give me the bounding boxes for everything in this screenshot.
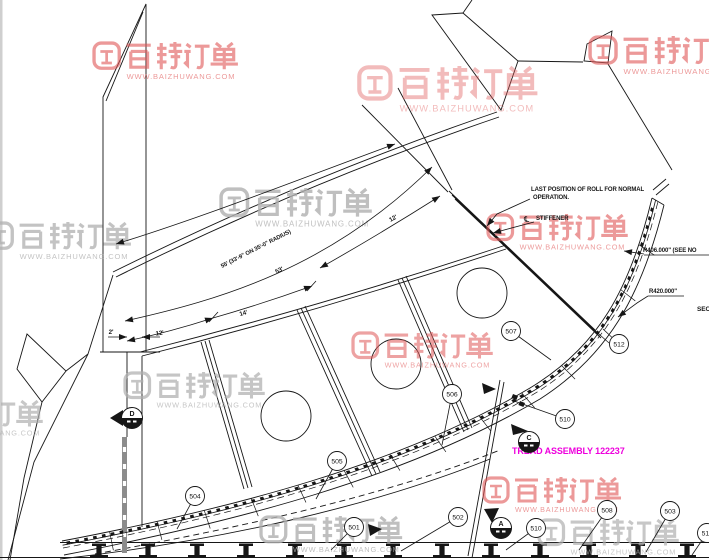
annotation-section-title-partial: SECT [697,306,709,313]
watermark-logo-icon [484,478,508,502]
annotation-radius-420: R420.000" [649,289,677,295]
annotation-radius-406: R406.000" (SEE NO [643,248,697,254]
dim-12ft-left: 12' [155,329,165,337]
dim-arc-14ft [213,286,312,318]
bolt-symbol [90,544,108,558]
watermark: WWW.BAIZHUWANG.COM [125,372,265,410]
balloon-507: 507 [502,322,552,361]
watermark-logo-icon [353,333,377,357]
watermark-logo-icon [94,43,119,68]
watermark-logo-icon [125,373,149,397]
balloon-number: 501 [348,524,360,531]
balloon-511: 511 [692,524,709,556]
balloon-number: 511 [702,530,709,537]
watermark: WWW.BAIZHUWANG.COM [0,222,131,261]
watermark-logo-icon [221,189,247,215]
watermark-brand-glyphs [515,477,621,503]
tread-band-inner-edge [64,205,664,555]
watermark-url: WWW.BAIZHUWANG.COM [255,220,369,229]
panel-divider [201,340,252,489]
watermark-url: WWW.BAIZHUWANG.COM [520,243,626,252]
watermark-brand-glyphs [0,400,43,427]
watermark-brand-glyphs [20,222,131,249]
watermark-logo-icon [261,517,286,542]
section-marker-D: D [110,408,143,429]
cad-drawing-canvas: WWW.BAIZHUWANG.COMWWW.BAIZHUWANG.COMWWW.… [0,0,709,560]
balloon-number: 504 [189,493,201,500]
bolt-symbol [433,544,451,558]
left-edge-strip [0,0,3,560]
panel-divider [398,276,472,432]
watermark-url: WWW.BAIZHUWANG.COM [400,104,535,114]
balloon-number: 507 [505,328,517,335]
dim-14ft: 14' [239,309,249,318]
annotation-last-position-line1: LAST POSITION OF ROLL FOR NORMAL [531,187,644,193]
watermark-brand-glyphs [624,36,709,64]
annotation-centerline-symbol: ℄ [523,215,530,224]
watermark-url: WWW.BAIZHUWANG.COM [157,401,263,410]
hole-circle [457,268,507,318]
section-letter: A [498,521,503,528]
watermark: WWW.BAIZHUWANG.COM [0,400,43,438]
balloon-number: 505 [331,458,343,465]
watermark-logo-icon [359,67,390,98]
structure-lines [0,0,709,560]
watermark: WWW.BAIZHUWANG.COM [539,519,679,557]
balloon-number: 506 [446,391,458,398]
watermark-brand-glyphs [400,66,538,100]
watermark: WWW.BAIZHUWANG.COM [221,188,372,229]
bolt-symbol [482,544,500,558]
section-letter: C [526,435,531,442]
watermark-url: WWW.BAIZHUWANG.COM [624,67,709,76]
watermark-url: WWW.BAIZHUWANG.COM [385,361,491,370]
engineering-drawing: WWW.BAIZHUWANG.COMWWW.BAIZHUWANG.COMWWW.… [0,0,709,560]
section-letter: D [129,411,134,418]
watermark-url: WWW.BAIZHUWANG.COM [293,545,400,554]
watermark-url: WWW.BAIZHUWANG.COM [571,548,677,557]
watermark-logo-icon [488,215,512,239]
dim-arc-12ft-top [320,196,440,268]
bolt-symbol [188,544,206,558]
balloon-number: 510 [559,416,571,423]
balloon-number: 510 [530,525,542,532]
watermark-brand-glyphs [127,42,238,69]
flag-mid-band [482,383,496,394]
bolt-symbol [678,544,696,558]
watermark: WWW.BAIZHUWANG.COM [353,332,493,370]
balloon-number: 502 [452,514,464,521]
dim-55ft: 55' (33'-9" ON 35'-0" RADIUS) [220,229,292,270]
annotation-stiffener-label: STIFFENER [536,216,569,222]
section-cut-bar-d [122,437,127,553]
balloon-504: 504 [177,487,205,530]
left-kite-plate [17,334,66,402]
watermark: WWW.BAIZHUWANG.COM [590,36,709,76]
balloon-number: 503 [664,508,676,515]
watermark: WWW.BAIZHUWANG.COM [359,66,537,114]
watermark-url: WWW.BAIZHUWANG.COM [20,252,129,261]
dim-2ft: 2' [109,329,114,336]
section-marker-A: A [484,508,512,539]
watermark-brand-glyphs [385,332,493,359]
balloon-502: 502 [401,508,468,552]
annotation-last-position-line2: OPERATION. [533,195,569,201]
watermark: WWW.BAIZHUWANG.COM [94,42,238,81]
dim-53ft: 53' [274,266,285,276]
watermark-url: WWW.BAIZHUWANG.COM [0,429,40,438]
watermark-brand-glyphs [255,188,372,217]
watermark-url: WWW.BAIZHUWANG.COM [127,72,236,81]
balloon-number: 512 [613,341,625,348]
bolt-symbol [139,544,157,558]
balloon-number: 508 [601,507,613,514]
bolt-symbol [237,544,255,558]
watermark-logo-icon [590,37,616,63]
balloon-callouts: 501502503504505506507508510510511512 [177,322,709,556]
hole-circle [261,391,311,441]
dim-arc-12ft-left [127,318,213,341]
